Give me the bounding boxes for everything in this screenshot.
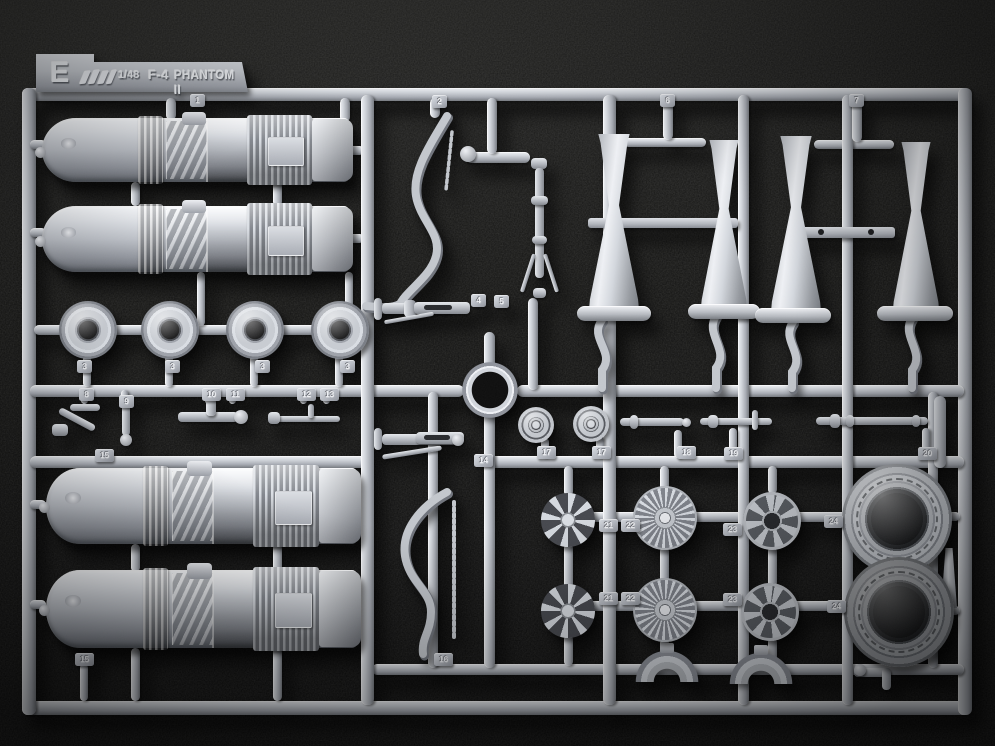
engine-detail [187, 563, 212, 579]
part-detail [708, 415, 718, 428]
engine-detail [65, 492, 81, 504]
engine-detail [61, 227, 77, 238]
part-detail [268, 412, 280, 424]
engine-detail [166, 209, 207, 270]
sprue-label-bar: E 1/48 F-4 PHANTOM II [36, 54, 248, 92]
part-number-tab: 22 [621, 519, 640, 532]
part-detail [120, 434, 132, 446]
part-detail [308, 404, 314, 418]
engine-detail [319, 571, 361, 647]
duct-arc-part [634, 648, 700, 682]
gear-strut-part [524, 158, 556, 300]
rod-part [268, 400, 348, 436]
engine-detail [206, 206, 250, 272]
engine-half-part [46, 570, 360, 648]
part-detail [531, 196, 548, 205]
part-number-tab: 8 [79, 388, 94, 401]
gear-strut-part [374, 422, 479, 466]
part-number-tab: 1 [190, 94, 205, 107]
flame-holder-part [541, 493, 595, 547]
engine-detail [143, 568, 168, 650]
part-detail [535, 168, 544, 278]
engine-detail [212, 468, 257, 544]
part-detail [882, 668, 891, 690]
engine-detail [187, 461, 212, 476]
photo-of-model-kit-sprue: E 1/48 F-4 PHANTOM II [0, 0, 995, 746]
engine-detail [172, 471, 214, 541]
tyre-part [226, 301, 284, 359]
part-detail [630, 415, 638, 429]
part-detail [424, 435, 450, 440]
part-detail [682, 418, 691, 427]
gear-strut-part [374, 294, 474, 326]
engine-intake-ring-part [844, 557, 954, 667]
pipe-part [178, 398, 250, 438]
engine-detail [319, 469, 361, 543]
part-detail [374, 428, 382, 450]
part-number-tab: 13 [320, 388, 339, 401]
compressor-fan-part [633, 486, 697, 550]
actuator-rod-part [620, 412, 692, 430]
nose-wheel-part [518, 407, 554, 443]
turbine-wheel-part [743, 492, 801, 550]
part-detail [533, 288, 546, 298]
part-detail [460, 146, 476, 162]
part-number-tab: 12 [297, 388, 316, 401]
part-number-tab: 11 [226, 388, 245, 401]
sprue-frame: E 1/48 F-4 PHANTOM II [0, 0, 995, 746]
strap-hole [868, 229, 874, 235]
part-number-tab: 10 [202, 388, 221, 401]
part-detail [52, 424, 68, 436]
engine-detail [268, 226, 304, 256]
sprue-letter: E [50, 56, 69, 90]
part-number-tab: 24 [827, 600, 846, 613]
part-number-tab: 15 [75, 653, 94, 666]
actuator-rod-part [700, 410, 782, 432]
engine-detail [138, 204, 163, 274]
part-detail [830, 414, 840, 428]
part-detail [374, 298, 382, 320]
tyre-part [59, 301, 117, 359]
part-detail [912, 415, 920, 427]
engine-detail [182, 112, 207, 125]
part-detail [414, 302, 470, 314]
ring-part [461, 361, 519, 419]
engine-detail [138, 116, 163, 184]
part-detail [424, 305, 452, 310]
tyre-part [141, 301, 199, 359]
part-detail [234, 410, 248, 424]
part-number-tab: 20 [918, 447, 937, 460]
flame-holder-part [541, 584, 595, 638]
nozzle-lip-part [577, 306, 651, 321]
part-number-tab: 21 [599, 519, 618, 532]
compressor-fan-part [633, 578, 697, 642]
part-number-tab: 3 [340, 360, 355, 373]
part-number-tab: 15 [95, 449, 114, 462]
engine-detail [166, 121, 207, 180]
engine-half-part [42, 206, 352, 272]
part-number-tab: 17 [537, 446, 556, 459]
engine-half-part [46, 468, 360, 544]
part-number-tab: 4 [471, 294, 486, 307]
strap-hole [818, 229, 824, 235]
engine-detail [182, 200, 207, 213]
engine-detail [312, 207, 353, 271]
part-number-tab: 17 [592, 446, 611, 459]
part-number-tab: 18 [677, 446, 696, 459]
splitter-frame-part [366, 116, 918, 656]
part-detail [846, 415, 854, 427]
aircraft-text: F-4 [148, 67, 169, 82]
engine-detail [312, 119, 353, 181]
nozzle-lip-part [688, 304, 760, 319]
engine-detail [212, 570, 257, 648]
nozzle-lip-part [755, 308, 831, 323]
part-number-tab: 14 [474, 454, 493, 467]
bracket-part [52, 396, 110, 440]
part-detail [532, 236, 547, 244]
part-number-tab: 7 [849, 94, 864, 107]
engine-detail [206, 118, 250, 182]
part-detail [452, 434, 464, 446]
part-number-tab: 3 [165, 360, 180, 373]
part-number-tab: 3 [77, 360, 92, 373]
turbine-wheel-part [741, 583, 799, 641]
part-number-tab: 21 [599, 592, 618, 605]
part-number-tab: 3 [255, 360, 270, 373]
engine-detail [143, 466, 168, 546]
engine-detail [172, 573, 214, 645]
engine-detail [275, 491, 312, 525]
engine-detail [275, 593, 312, 628]
part-number-tab: 19 [724, 447, 743, 460]
engine-detail [61, 138, 77, 148]
nozzle-lip-part [877, 306, 953, 321]
fitting-part [116, 402, 136, 446]
tyre-part [311, 301, 369, 359]
part-number-tab: 2 [432, 95, 447, 108]
engine-detail [65, 595, 81, 607]
part-number-tab: 22 [621, 592, 640, 605]
engine-detail [268, 137, 304, 166]
part-number-tab: 23 [723, 523, 742, 536]
part-detail [382, 445, 442, 459]
duct-arc-part [728, 650, 794, 684]
kit-name-text: PHANTOM II [174, 67, 239, 97]
part-detail [70, 404, 100, 411]
part-detail [752, 410, 758, 430]
part-number-tab: 16 [434, 653, 453, 666]
part-number-tab: 5 [494, 295, 509, 308]
part-number-tab: 9 [119, 395, 134, 408]
part-detail [854, 664, 866, 676]
part-number-tab: 24 [824, 515, 843, 528]
nose-wheel-part [573, 406, 609, 442]
actuator-rod-part [816, 410, 936, 428]
part-number-tab: 23 [723, 593, 742, 606]
part-number-tab: 6 [660, 94, 675, 107]
scale-text: 1/48 [118, 69, 139, 81]
engine-half-part [42, 118, 352, 182]
